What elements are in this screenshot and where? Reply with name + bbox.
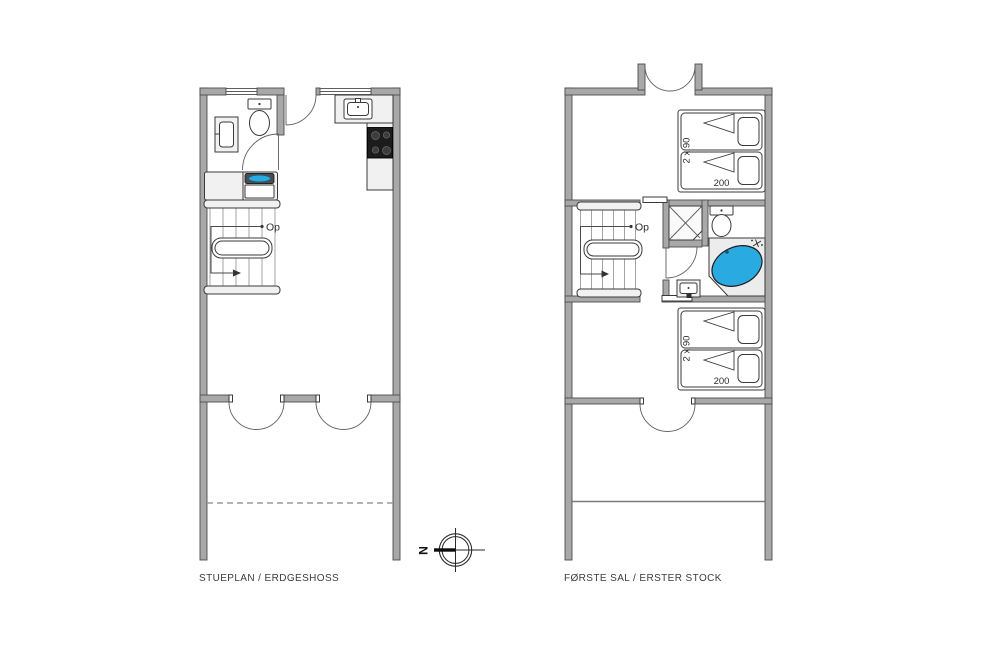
wall-balcony (695, 398, 772, 404)
door-jamb (368, 395, 372, 402)
wall-shower (669, 240, 702, 247)
wall-right (393, 88, 400, 560)
drain (725, 250, 729, 254)
wall-terrace (371, 395, 400, 402)
balcony-stub-wall (695, 64, 702, 90)
toilet-icon (710, 206, 733, 237)
floor-plan-canvas: Op STUEPLAN / ERDGESHOSS N (0, 0, 1000, 667)
wall-bathroom (663, 200, 669, 248)
wall-left (565, 88, 572, 560)
vanity-sink-icon (205, 172, 278, 200)
balcony-double-door-icon (645, 66, 695, 91)
wall-bathroom (277, 95, 284, 135)
toilet-icon (248, 99, 271, 136)
french-door-icon (229, 402, 284, 430)
bed-length-label: 200 (714, 376, 730, 387)
stair-direction-label: Op (266, 222, 280, 234)
floor-label: STUEPLAN / ERDGESHOSS (199, 573, 339, 584)
wall-top (257, 88, 284, 95)
pillow (738, 316, 759, 344)
pillow (738, 355, 759, 383)
pillow (738, 157, 759, 185)
bathroom-door-icon (243, 134, 279, 170)
compass-rose: N (417, 528, 486, 572)
stair-direction-label: Op (635, 222, 649, 234)
floor-plan-page: Op STUEPLAN / ERDGESHOSS N (0, 0, 1000, 667)
wall-right (765, 88, 772, 560)
stair-direction-arrow (602, 271, 610, 278)
wall-top (695, 88, 772, 95)
wall-top (565, 88, 645, 95)
stove-icon (368, 128, 393, 159)
ground-floor-plan: Op STUEPLAN / ERDGESHOSS (199, 88, 400, 584)
stair-edge (204, 286, 280, 294)
staircase: Op (577, 202, 649, 297)
double-bed: 2 x 90 200 (678, 308, 765, 390)
stair-edge (204, 200, 280, 208)
wall-left (200, 88, 207, 560)
sink-icon (677, 280, 700, 298)
window-icon (320, 89, 371, 95)
shower-icon (669, 206, 702, 240)
stair-direction-arrow (233, 270, 241, 277)
kitchen-sink-icon (344, 99, 372, 120)
french-door-icon (640, 404, 695, 432)
door-leaf (643, 197, 667, 203)
wall-interior (663, 200, 765, 206)
first-floor-plan: 2 x 90 200 Op (564, 64, 772, 584)
bathroom-door-icon (666, 247, 697, 278)
door-jamb (316, 395, 320, 402)
entry-door-icon (286, 95, 316, 125)
north-label: N (417, 546, 431, 555)
wall-shower (702, 200, 708, 246)
floor-label: FØRSTE SAL / ERSTER STOCK (564, 573, 722, 584)
wall-terrace (200, 395, 229, 402)
staircase: Op (204, 200, 280, 294)
door-jamb (229, 395, 233, 402)
wall-cabinet-icon (215, 117, 238, 152)
door-jamb (281, 395, 285, 402)
french-door-icon (316, 402, 371, 430)
balcony-stub-wall (638, 64, 645, 90)
bed-width-label: 2 x 90 (682, 336, 693, 362)
wall-top (371, 88, 400, 95)
door-jamb (640, 398, 644, 404)
wall-balcony (565, 398, 640, 404)
north-pointer (434, 548, 456, 551)
double-bed: 2 x 90 200 (678, 110, 765, 192)
door-jamb (692, 398, 696, 404)
window-icon (226, 89, 257, 95)
bed-width-label: 2 x 90 (682, 138, 693, 164)
stair-edge (577, 289, 641, 297)
wall-top (316, 88, 320, 95)
bathtub-icon (706, 238, 769, 296)
stair-edge (577, 202, 641, 210)
wall-top (200, 88, 226, 95)
wall-terrace (284, 395, 316, 402)
bed-length-label: 200 (714, 178, 730, 189)
pillow (738, 118, 759, 146)
